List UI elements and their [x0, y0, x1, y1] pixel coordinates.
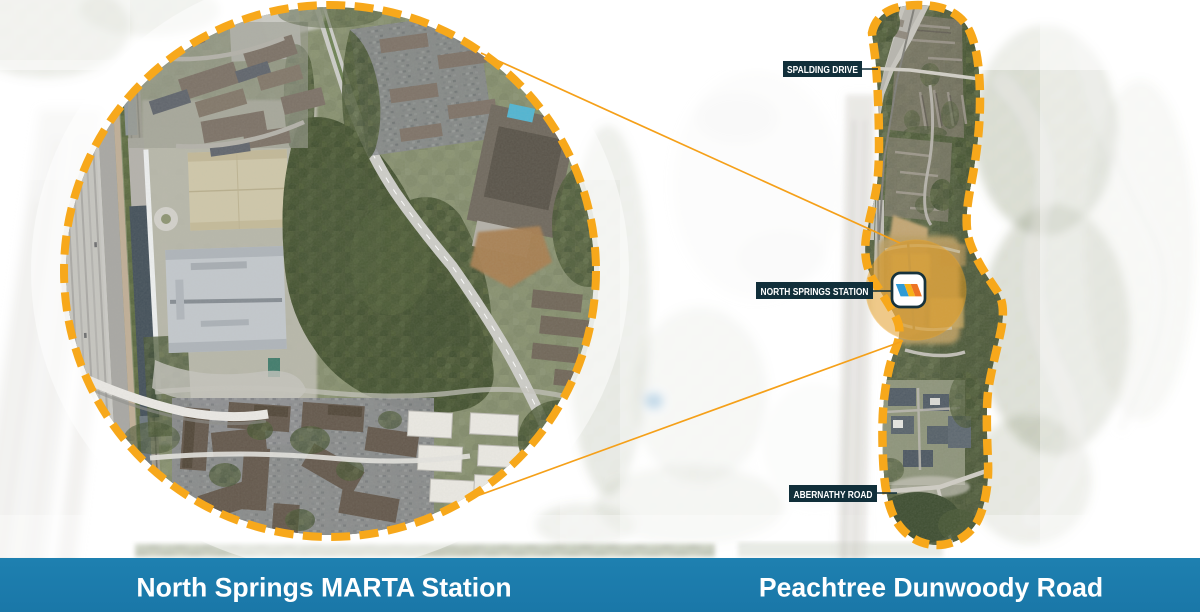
svg-text:North Springs MARTA Station: North Springs MARTA Station: [136, 573, 511, 603]
svg-text:NORTH SPRINGS STATION: NORTH SPRINGS STATION: [761, 286, 869, 298]
svg-text:Peachtree Dunwoody Road: Peachtree Dunwoody Road: [759, 573, 1103, 603]
svg-text:ABERNATHY ROAD: ABERNATHY ROAD: [794, 489, 873, 501]
svg-text:SPALDING DRIVE: SPALDING DRIVE: [787, 65, 858, 76]
